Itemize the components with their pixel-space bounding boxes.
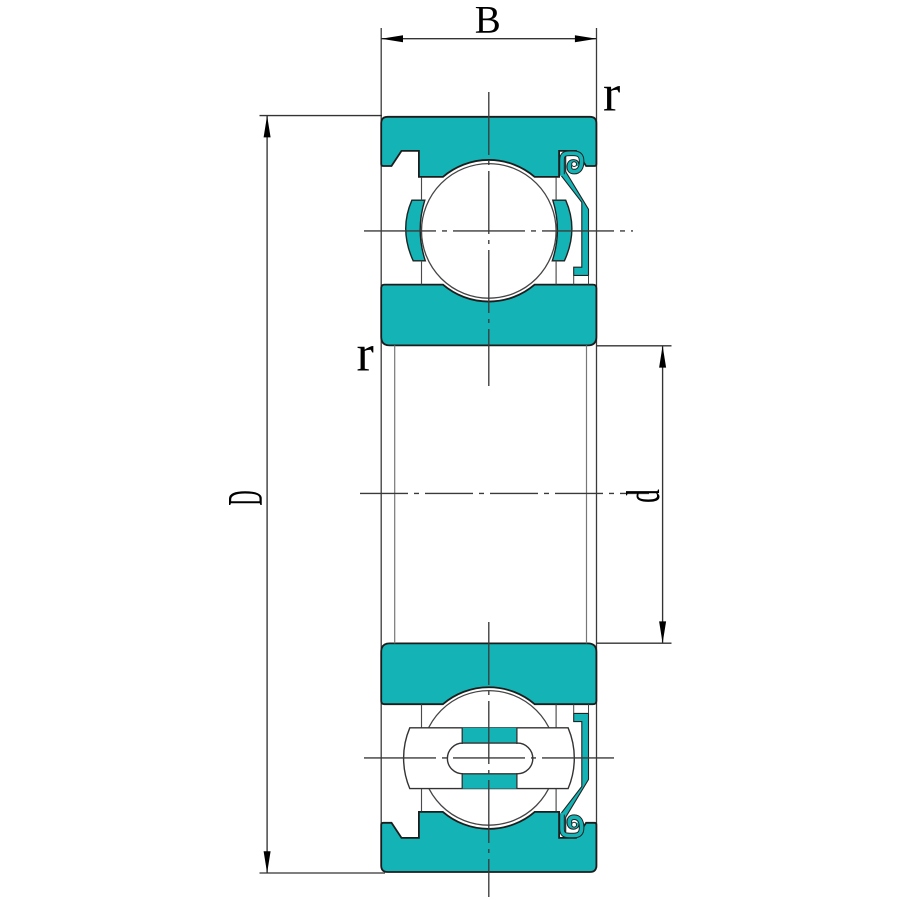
svg-text:r: r	[357, 326, 374, 383]
svg-text:D: D	[219, 490, 274, 505]
svg-text:r: r	[603, 66, 620, 123]
svg-text:B: B	[475, 0, 501, 42]
svg-text:d: d	[617, 489, 670, 503]
